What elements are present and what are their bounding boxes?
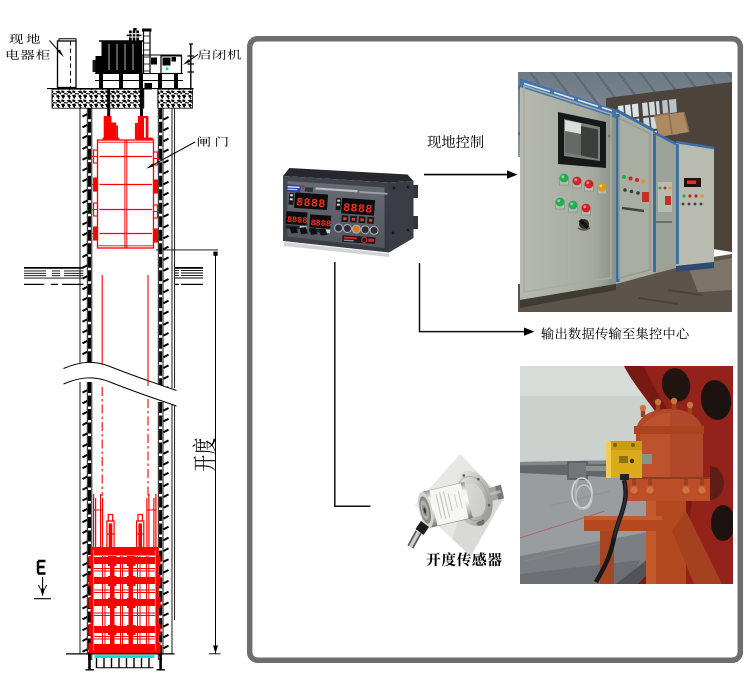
svg-text:8888: 8888 (287, 215, 308, 226)
svg-text:8888: 8888 (296, 196, 326, 211)
svg-text:8888: 8888 (343, 202, 373, 217)
svg-text:8888: 8888 (310, 218, 331, 229)
